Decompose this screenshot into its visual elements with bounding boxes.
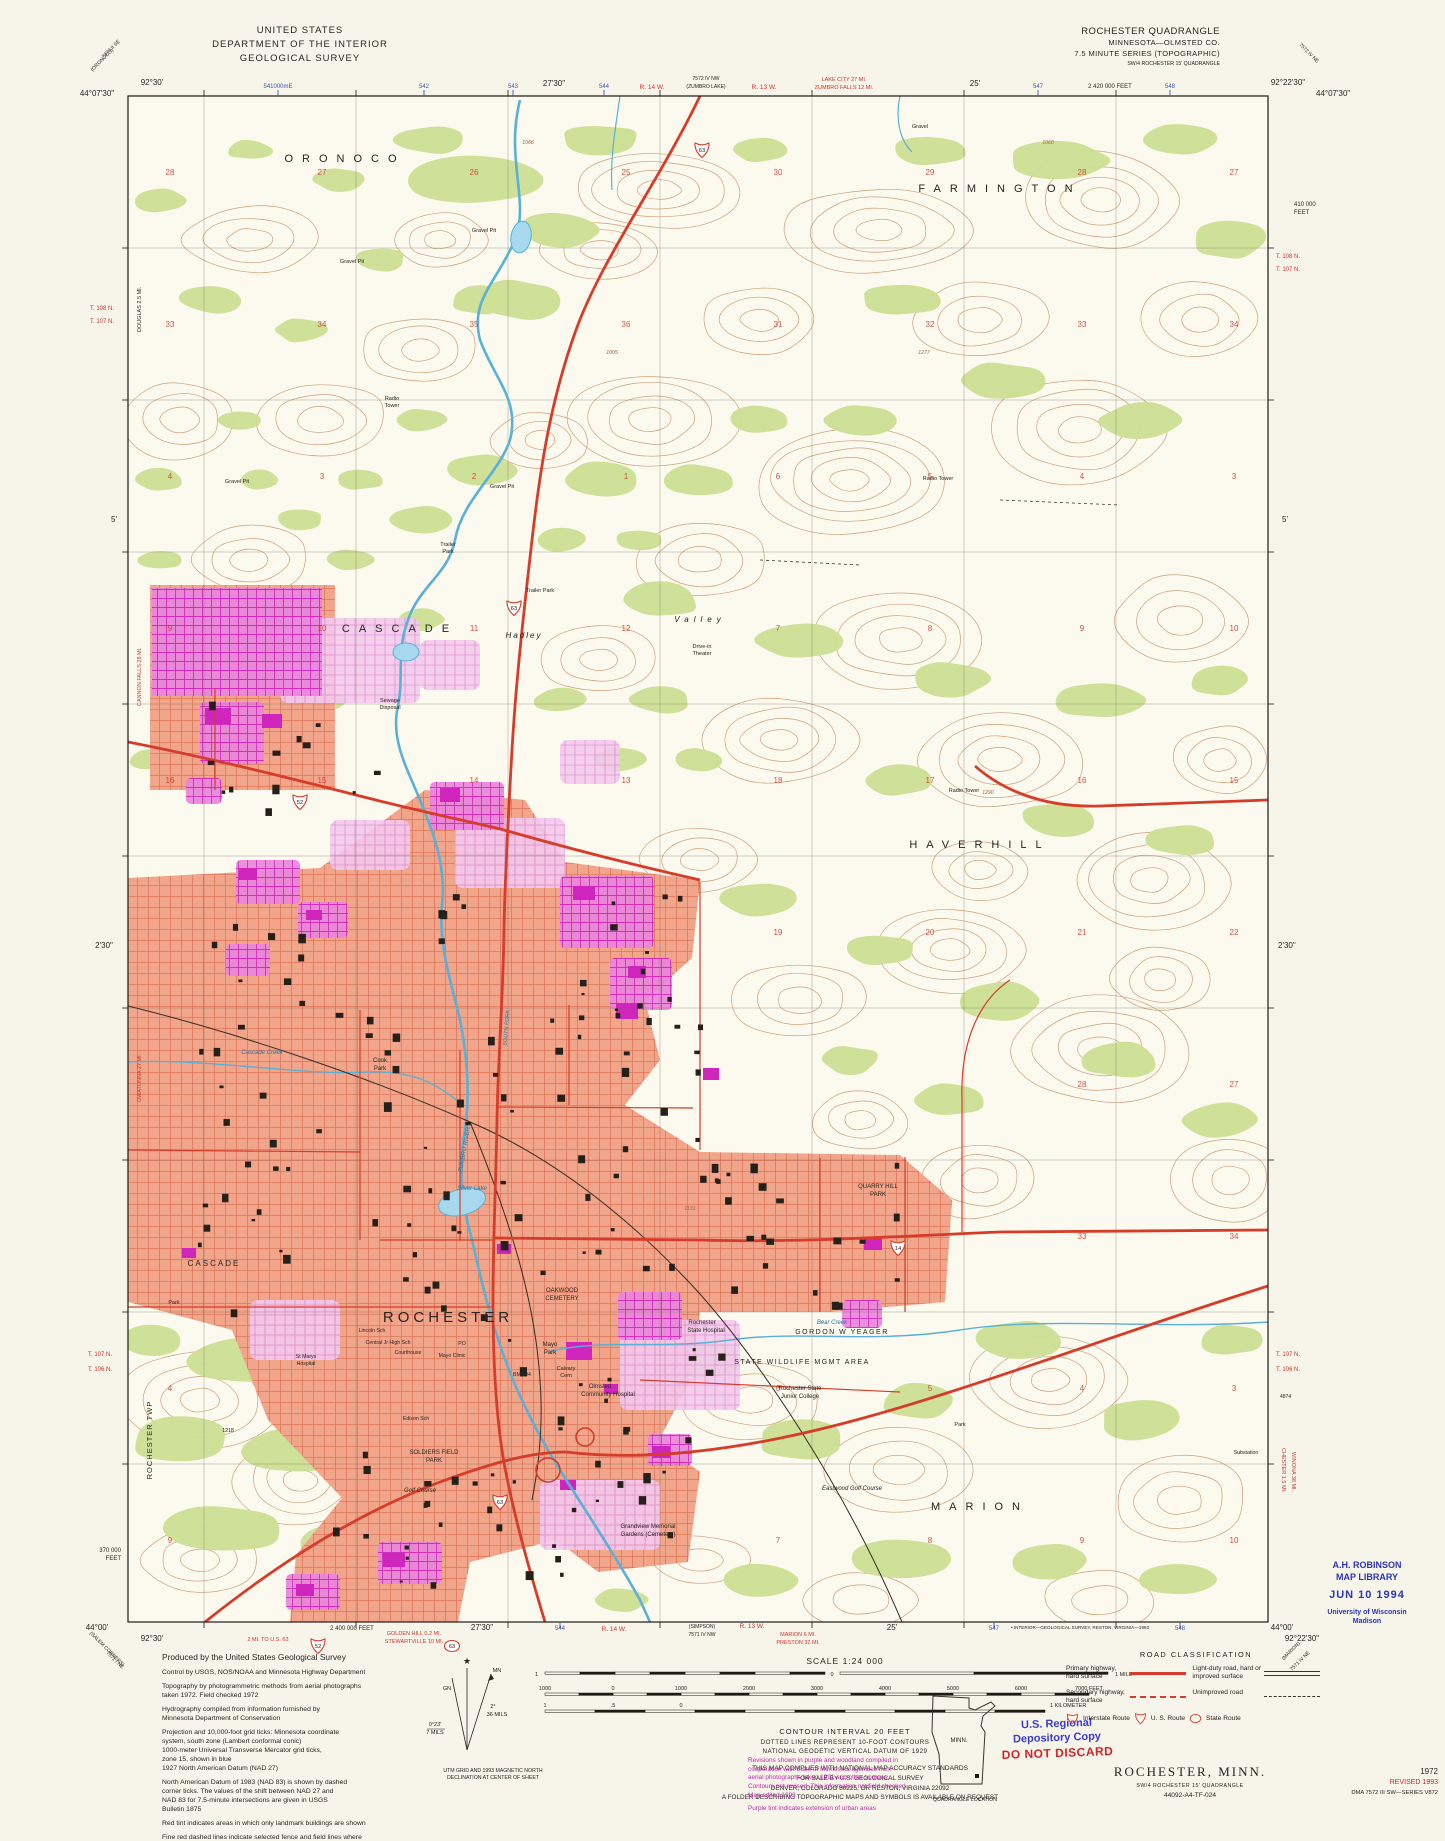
svg-text:PARK: PARK <box>870 1192 886 1198</box>
svg-text:1000: 1000 <box>539 1686 551 1692</box>
revision-note: Revisions shown in purple and woodland c… <box>748 1757 1038 1814</box>
svg-text:PARK: PARK <box>426 1458 442 1464</box>
svg-text:OAKWOOD: OAKWOOD <box>546 1288 579 1294</box>
stamp-line: A.H. ROBINSON <box>1292 1560 1442 1572</box>
stamp-line: University of Wisconsin <box>1292 1608 1442 1617</box>
svg-text:Hadley: Hadley <box>506 631 543 640</box>
svg-text:44°07'30": 44°07'30" <box>1316 89 1350 98</box>
credit-paragraph: Red tint indicates areas in which only l… <box>162 1820 474 1829</box>
svg-text:6: 6 <box>776 472 781 481</box>
svg-text:4: 4 <box>1080 1384 1085 1393</box>
svg-text:3: 3 <box>1232 1384 1237 1393</box>
svg-text:CASCADE: CASCADE <box>188 1259 241 1268</box>
svg-text:548: 548 <box>1165 84 1176 90</box>
svg-text:Substation: Substation <box>1234 1450 1259 1456</box>
map-sheet: UNITED STATES DEPARTMENT OF THE INTERIOR… <box>0 0 1445 1841</box>
svg-text:QUARRY HILL: QUARRY HILL <box>858 1184 898 1190</box>
svg-text:2 420 000 FEET: 2 420 000 FEET <box>1088 84 1132 90</box>
svg-text:Silver Lake: Silver Lake <box>457 1186 487 1192</box>
legend-label: Light-duty road, hard orimproved surface <box>1192 1665 1264 1681</box>
production-credits: Produced by the United States Geological… <box>162 1652 474 1841</box>
svg-text:28: 28 <box>166 168 175 177</box>
svg-text:33: 33 <box>1078 320 1087 329</box>
svg-text:30: 30 <box>774 168 783 177</box>
svg-text:T. 107 N.: T. 107 N. <box>90 319 114 325</box>
svg-text:1131: 1131 <box>684 1206 695 1212</box>
svg-text:FARMINGTON: FARMINGTON <box>918 183 1081 195</box>
svg-text:Edison Sch: Edison Sch <box>403 1416 429 1422</box>
svg-text:26: 26 <box>470 168 479 177</box>
svg-text:Community Hospital: Community Hospital <box>581 1392 635 1398</box>
svg-text:1277: 1277 <box>918 350 931 356</box>
svg-text:Park: Park <box>168 1300 180 1306</box>
stamp-line: Madison <box>1292 1617 1442 1626</box>
svg-text:14: 14 <box>470 776 479 785</box>
svg-text:Junior College: Junior College <box>781 1394 820 1400</box>
svg-text:Tower: Tower <box>385 403 400 409</box>
edition-revised: REVISED 1993 <box>1270 1778 1438 1789</box>
svg-text:Park: Park <box>954 1422 966 1428</box>
credit-paragraph: Fine red dashed lines indicate selected … <box>162 1834 474 1841</box>
svg-text:R. 13 W.: R. 13 W. <box>752 84 777 91</box>
svg-text:Central Jr High Sch: Central Jr High Sch <box>366 1340 411 1346</box>
svg-text:FEET: FEET <box>1294 210 1310 216</box>
svg-text:3: 3 <box>320 472 325 481</box>
svg-text:0: 0 <box>830 1672 833 1678</box>
svg-text:2'30": 2'30" <box>95 941 113 950</box>
revision-lines: Revisions shown in purple and woodland c… <box>748 1757 1038 1800</box>
svg-text:9: 9 <box>1080 624 1085 633</box>
svg-text:2'30": 2'30" <box>1278 941 1296 950</box>
library-stamp: A.H. ROBINSON MAP LIBRARY JUN 10 1994 Un… <box>1292 1560 1442 1626</box>
svg-text:(ZUMBRO LAKE): (ZUMBRO LAKE) <box>686 84 726 90</box>
us-route-label: U. S. Route <box>1151 1715 1185 1723</box>
svg-text:State Hospital: State Hospital <box>687 1328 724 1334</box>
svg-text:Drive-in: Drive-in <box>693 644 712 650</box>
road-classification-legend: ROAD CLASSIFICATION Primary highway,hard… <box>1066 1650 1326 1725</box>
credit-paragraph: Control by USGS, NOS/NOAA and Minnesota … <box>162 1669 474 1678</box>
svg-text:1290: 1290 <box>982 790 994 796</box>
svg-text:Mayo Clinic: Mayo Clinic <box>439 1353 466 1359</box>
svg-text:Gardens (Cemetery): Gardens (Cemetery) <box>621 1532 676 1538</box>
svg-text:543: 543 <box>508 84 519 90</box>
svg-text:Rochester: Rochester <box>688 1320 715 1326</box>
svg-text:CHESTER 1.5 MI.: CHESTER 1.5 MI. <box>1280 1448 1286 1493</box>
svg-text:1000: 1000 <box>675 1686 687 1692</box>
svg-text:17: 17 <box>926 776 935 785</box>
svg-text:7: 7 <box>776 1536 781 1545</box>
primary-road-sample <box>1130 1665 1186 1681</box>
svg-text:2°: 2° <box>490 1704 495 1710</box>
svg-text:33: 33 <box>166 320 175 329</box>
svg-text:St Marys: St Marys <box>296 1354 317 1360</box>
svg-text:GOLDEN HILL 0.2 MI.: GOLDEN HILL 0.2 MI. <box>387 1631 442 1637</box>
svg-text:Courthouse: Courthouse <box>395 1350 422 1356</box>
svg-text:25: 25 <box>622 168 631 177</box>
svg-text:Gravel Pit: Gravel Pit <box>225 479 250 485</box>
svg-text:Gravel Pit: Gravel Pit <box>340 259 365 265</box>
svg-text:Cascade Creek: Cascade Creek <box>241 1050 283 1056</box>
us-route-shield-icon <box>1134 1712 1147 1725</box>
svg-text:DOTTED LINES REPRESENT 10-FOOT: DOTTED LINES REPRESENT 10-FOOT CONTOURS <box>761 1739 930 1746</box>
svg-text:10: 10 <box>1230 1536 1239 1545</box>
svg-text:25': 25' <box>887 1623 898 1632</box>
svg-text:15: 15 <box>318 776 327 785</box>
svg-text:PO: PO <box>458 1341 466 1347</box>
svg-text:3: 3 <box>1232 472 1237 481</box>
svg-text:Gravel Pit: Gravel Pit <box>472 228 497 234</box>
svg-text:5': 5' <box>1282 515 1288 524</box>
svg-text:2 MI. TO U.S. 63: 2 MI. TO U.S. 63 <box>247 1637 288 1643</box>
svg-text:44°00': 44°00' <box>1271 1623 1294 1632</box>
svg-text:2: 2 <box>472 472 477 481</box>
stamp-line: MAP LIBRARY <box>1292 1572 1442 1584</box>
svg-text:Sewage: Sewage <box>380 698 400 704</box>
svg-text:T. 106 N.: T. 106 N. <box>88 1367 112 1373</box>
svg-text:• INTERIOR—GEOLOGICAL SURVEY,: • INTERIOR—GEOLOGICAL SURVEY, RESTON, VI… <box>1011 1625 1149 1630</box>
svg-text:GORDON W YEAGER: GORDON W YEAGER <box>795 1329 889 1336</box>
svg-text:542: 542 <box>419 84 430 90</box>
svg-text:44°07'30": 44°07'30" <box>80 89 114 98</box>
svg-text:MN: MN <box>493 1668 502 1674</box>
svg-text:SCALE 1:24 000: SCALE 1:24 000 <box>806 1656 883 1666</box>
svg-text:Eastwood Golf Course: Eastwood Golf Course <box>822 1486 883 1492</box>
svg-text:27'30": 27'30" <box>543 79 565 88</box>
svg-text:0: 0 <box>611 1686 614 1692</box>
svg-text:STATE WILDLIFE MGMT AREA: STATE WILDLIFE MGMT AREA <box>734 1359 870 1366</box>
legend-title: ROAD CLASSIFICATION <box>1066 1650 1326 1659</box>
svg-text:35: 35 <box>470 320 479 329</box>
svg-text:2 400 000 FEET: 2 400 000 FEET <box>330 1626 374 1632</box>
svg-text:R. 14 W.: R. 14 W. <box>602 1626 627 1633</box>
interstate-shield-icon <box>1066 1712 1079 1725</box>
svg-text:34: 34 <box>1230 1232 1239 1241</box>
svg-text:34: 34 <box>318 320 327 329</box>
secondary-road-sample <box>1130 1689 1186 1705</box>
svg-text:4: 4 <box>168 472 173 481</box>
svg-text:370 000: 370 000 <box>99 1548 121 1554</box>
legend-label: Primary highway,hard surface <box>1066 1665 1130 1681</box>
svg-text:27: 27 <box>1230 168 1239 177</box>
unimproved-road-sample <box>1264 1689 1320 1705</box>
svg-text:HAVERHILL: HAVERHILL <box>909 839 1050 851</box>
svg-text:PRESTON 32 MI.: PRESTON 32 MI. <box>776 1640 820 1646</box>
svg-text:92°22'30": 92°22'30" <box>1271 78 1305 87</box>
svg-text:52: 52 <box>315 1644 321 1650</box>
svg-text:Grandview Memorial: Grandview Memorial <box>620 1524 675 1530</box>
svg-text:Bear Creek: Bear Creek <box>817 1320 848 1326</box>
svg-text:2000: 2000 <box>743 1686 755 1692</box>
svg-text:27: 27 <box>318 168 327 177</box>
declination-caption: UTM GRID AND 1993 MAGNETIC NORTH DECLINA… <box>408 1768 578 1783</box>
svg-text:19: 19 <box>774 928 783 937</box>
svg-text:10: 10 <box>1230 624 1239 633</box>
interstate-label: Interstate Route <box>1083 1715 1130 1723</box>
svg-text:Radio: Radio <box>385 396 399 402</box>
svg-text:18: 18 <box>774 776 783 785</box>
stamp-date: JUN 10 1994 <box>1292 1588 1442 1602</box>
svg-text:63: 63 <box>511 606 517 612</box>
svg-text:1: 1 <box>535 1672 538 1678</box>
svg-text:21: 21 <box>1078 928 1087 937</box>
svg-text:9: 9 <box>168 1536 173 1545</box>
credit-paragraph: Hydrography compiled from information fu… <box>162 1706 474 1724</box>
svg-text:11: 11 <box>470 624 479 633</box>
svg-text:92°30': 92°30' <box>141 78 164 87</box>
svg-text:13: 13 <box>622 776 631 785</box>
svg-text:4: 4 <box>1080 472 1085 481</box>
svg-text:12: 12 <box>622 624 631 633</box>
svg-text:0: 0 <box>679 1703 682 1709</box>
svg-text:16: 16 <box>1078 776 1087 785</box>
svg-text:T. 107 N.: T. 107 N. <box>88 1352 112 1358</box>
svg-text:9: 9 <box>168 624 173 633</box>
svg-text:Park: Park <box>442 549 454 555</box>
svg-text:LAKE CITY 27 MI.: LAKE CITY 27 MI. <box>822 77 867 83</box>
svg-text:1060: 1060 <box>1042 140 1054 146</box>
svg-text:Rochester State: Rochester State <box>778 1386 822 1392</box>
svg-text:Lincoln Sch: Lincoln Sch <box>359 1328 386 1334</box>
svg-text:1066: 1066 <box>522 140 534 146</box>
svg-text:9: 9 <box>1080 1536 1085 1545</box>
svg-text:7572 IV NW: 7572 IV NW <box>693 76 720 82</box>
svg-text:36 MILS: 36 MILS <box>487 1712 508 1718</box>
svg-text:Theater: Theater <box>693 651 712 657</box>
svg-text:R. 14 W.: R. 14 W. <box>640 84 665 91</box>
svg-text:T. 107 N.: T. 107 N. <box>1276 267 1300 273</box>
credit-paragraph: Produced by the United States Geological… <box>162 1652 474 1663</box>
svg-text:(SIMPSON): (SIMPSON) <box>689 1624 716 1630</box>
svg-text:ZUMBRO FALLS 12 MI.: ZUMBRO FALLS 12 MI. <box>815 85 874 91</box>
svg-text:SOLDIERS FIELD: SOLDIERS FIELD <box>409 1450 459 1456</box>
edition-dma: DMA 7572 III SW—SERIES V872 <box>1270 1789 1438 1798</box>
svg-text:(ORONOCO): (ORONOCO) <box>90 47 115 72</box>
svg-text:7: 7 <box>776 624 781 633</box>
svg-text:Valley: Valley <box>674 615 726 624</box>
svg-text:52: 52 <box>297 800 303 806</box>
svg-text:BM 994: BM 994 <box>513 1372 531 1378</box>
svg-text:44°00': 44°00' <box>86 1623 109 1632</box>
purple-tint-note: Purple tint indicates extension of urban… <box>748 1805 1038 1814</box>
svg-text:ROCHESTER: ROCHESTER <box>383 1309 513 1326</box>
svg-text:Radio Tower: Radio Tower <box>949 788 980 794</box>
svg-text:Cook: Cook <box>373 1058 388 1064</box>
state-route-shield-icon <box>1189 1712 1202 1725</box>
svg-text:8: 8 <box>928 624 933 633</box>
svg-text:Park: Park <box>544 1350 557 1356</box>
svg-text:Park: Park <box>374 1066 387 1072</box>
svg-text:15: 15 <box>1230 776 1239 785</box>
svg-text:5': 5' <box>111 515 117 524</box>
svg-text:32: 32 <box>926 320 935 329</box>
svg-text:27: 27 <box>1230 1080 1239 1089</box>
light-road-sample <box>1264 1665 1320 1681</box>
svg-text:CONTOUR INTERVAL 20 FEET: CONTOUR INTERVAL 20 FEET <box>779 1727 910 1736</box>
svg-text:4: 4 <box>168 1384 173 1393</box>
svg-text:STEWARTVILLE 10 MI.: STEWARTVILLE 10 MI. <box>385 1639 444 1645</box>
svg-text:4874: 4874 <box>1280 1394 1291 1400</box>
svg-text:Trailer: Trailer <box>440 542 456 548</box>
svg-text:34: 34 <box>1230 320 1239 329</box>
svg-text:Radio Tower: Radio Tower <box>923 476 954 482</box>
svg-text:33: 33 <box>1078 1232 1087 1241</box>
svg-text:FEET: FEET <box>106 1556 122 1562</box>
svg-text:29: 29 <box>926 168 935 177</box>
svg-text:DOUGLAS 2.5 MI.: DOUGLAS 2.5 MI. <box>137 286 143 332</box>
svg-text:3000: 3000 <box>811 1686 823 1692</box>
svg-text:7572 IV NE: 7572 IV NE <box>1298 42 1321 65</box>
svg-text:CEMETERY: CEMETERY <box>545 1296 578 1302</box>
svg-text:MARION: MARION <box>931 1501 1029 1513</box>
svg-text:.5: .5 <box>611 1703 616 1709</box>
svg-text:Gravel: Gravel <box>912 124 928 130</box>
svg-text:547: 547 <box>1033 84 1044 90</box>
svg-text:Olmsted: Olmsted <box>589 1384 611 1390</box>
state-route-label: State Route <box>1206 1715 1241 1723</box>
svg-text:T. 107 N.: T. 107 N. <box>1276 1352 1300 1358</box>
svg-text:14: 14 <box>895 1246 902 1252</box>
svg-text:T. 108 N.: T. 108 N. <box>1276 254 1300 260</box>
svg-text:R. 13 W.: R. 13 W. <box>740 1623 765 1630</box>
svg-text:92°22'30": 92°22'30" <box>1285 1634 1319 1643</box>
svg-text:Cem: Cem <box>560 1373 572 1379</box>
svg-text:541000mE: 541000mE <box>263 84 292 90</box>
legend-label: Unimproved road <box>1192 1689 1264 1705</box>
edition-block: 1972 REVISED 1993 DMA 7572 III SW—SERIES… <box>1270 1766 1438 1797</box>
svg-text:410 000: 410 000 <box>1294 202 1316 208</box>
svg-text:10: 10 <box>318 624 327 633</box>
svg-text:Golf Course: Golf Course <box>404 1488 437 1494</box>
svg-text:Calvary: Calvary <box>557 1366 576 1372</box>
svg-text:4000: 4000 <box>879 1686 891 1692</box>
credit-paragraph: Topography by photogrammetric methods fr… <box>162 1683 474 1701</box>
svg-text:544: 544 <box>599 84 610 90</box>
svg-text:28: 28 <box>1078 1080 1087 1089</box>
svg-text:22: 22 <box>1230 928 1239 937</box>
svg-text:5000: 5000 <box>947 1686 959 1692</box>
svg-text:1: 1 <box>624 472 629 481</box>
svg-text:Disposal: Disposal <box>379 705 400 711</box>
svg-text:5: 5 <box>928 1384 933 1393</box>
svg-text:25': 25' <box>970 79 981 88</box>
svg-text:36: 36 <box>622 320 631 329</box>
edition-year: 1972 <box>1270 1766 1438 1778</box>
svg-text:1005: 1005 <box>606 350 618 356</box>
svg-text:63: 63 <box>449 1644 455 1650</box>
svg-text:Gravel Pit: Gravel Pit <box>490 484 515 490</box>
svg-text:NATIONAL GEODETIC VERTICAL DAT: NATIONAL GEODETIC VERTICAL DATUM OF 1929 <box>763 1748 928 1755</box>
svg-text:Mayo: Mayo <box>543 1342 558 1348</box>
svg-text:ROCHESTER TWP: ROCHESTER TWP <box>145 1401 154 1480</box>
svg-text:63: 63 <box>699 148 705 154</box>
svg-text:T. 106 N.: T. 106 N. <box>1276 1367 1300 1373</box>
svg-text:63: 63 <box>497 1500 503 1506</box>
svg-text:Trailer Park: Trailer Park <box>526 588 554 594</box>
svg-text:7571 IV NW: 7571 IV NW <box>689 1632 716 1638</box>
svg-text:92°30': 92°30' <box>141 1634 164 1643</box>
svg-text:MARION 6 MI.: MARION 6 MI. <box>780 1632 816 1638</box>
legend-label: Secondary highway,hard surface <box>1066 1689 1130 1705</box>
svg-text:27'30": 27'30" <box>471 1623 493 1632</box>
svg-text:OWATONNA 27 MI.: OWATONNA 27 MI. <box>137 1053 143 1102</box>
svg-text:1218: 1218 <box>222 1428 234 1434</box>
svg-text:CASCADE: CASCADE <box>342 623 458 635</box>
svg-text:31: 31 <box>774 320 783 329</box>
svg-text:Hospital: Hospital <box>297 1361 316 1367</box>
svg-text:6000: 6000 <box>1015 1686 1027 1692</box>
svg-text:CANNON FALLS 28 MI.: CANNON FALLS 28 MI. <box>137 647 143 706</box>
credit-paragraph: North American Datum of 1983 (NAD 83) is… <box>162 1779 474 1815</box>
svg-text:20: 20 <box>926 928 935 937</box>
svg-text:28: 28 <box>1078 168 1087 177</box>
topographic-map: 5263631463282726253029282733343536313233… <box>0 0 1445 1841</box>
svg-text:ORONOCO: ORONOCO <box>284 153 405 165</box>
svg-text:16: 16 <box>166 776 175 785</box>
svg-text:8: 8 <box>928 1536 933 1545</box>
svg-text:T. 108 N.: T. 108 N. <box>90 306 114 312</box>
svg-text:WINONA 38 MI.: WINONA 38 MI. <box>1290 1452 1296 1492</box>
svg-text:1: 1 <box>543 1703 546 1709</box>
